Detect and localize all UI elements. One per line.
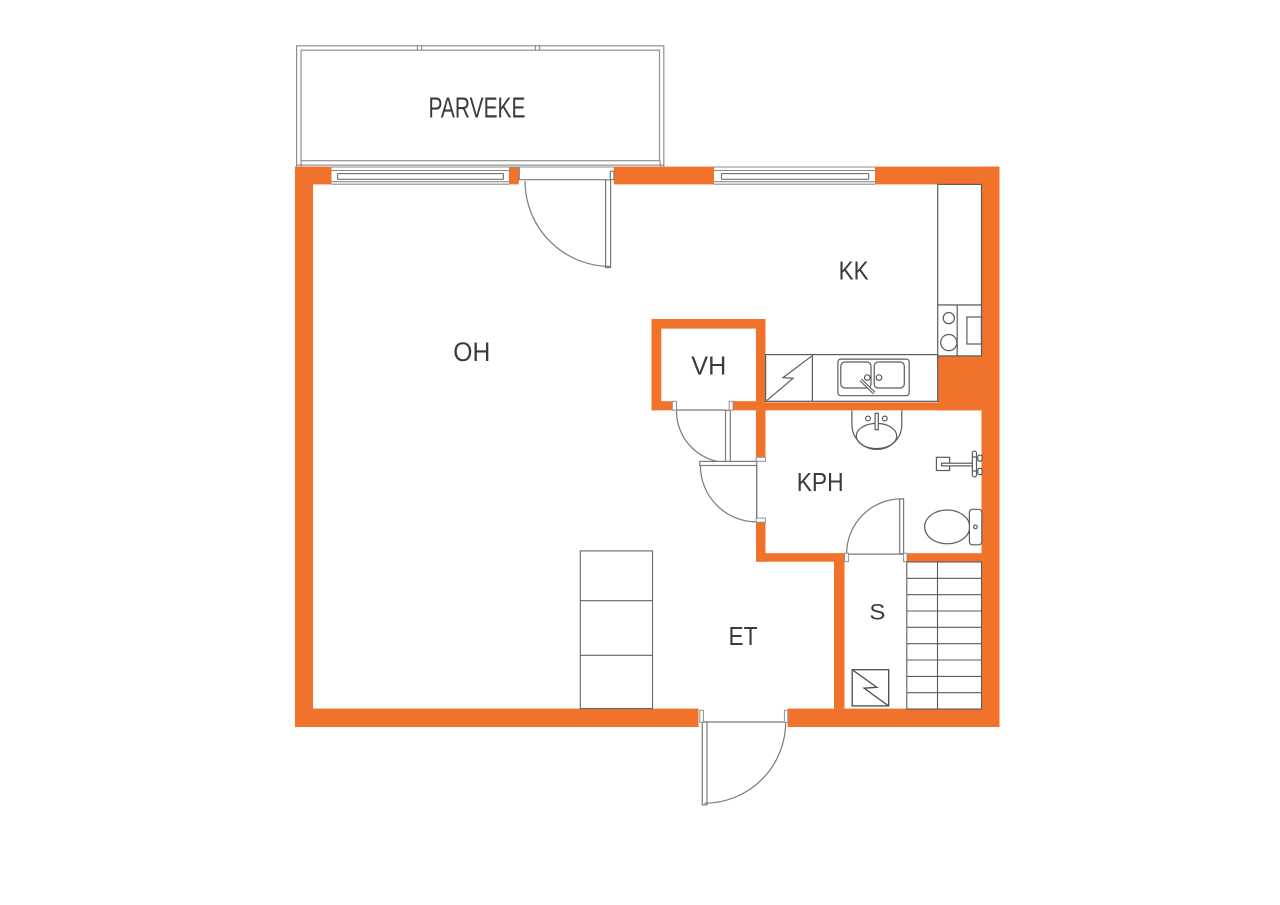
svg-text:KK: KK bbox=[839, 256, 870, 286]
svg-text:VH: VH bbox=[691, 353, 726, 381]
svg-text:S: S bbox=[869, 599, 885, 624]
svg-text:KPH: KPH bbox=[797, 469, 844, 497]
svg-text:ET: ET bbox=[729, 623, 758, 651]
svg-text:PARVEKE: PARVEKE bbox=[429, 93, 526, 125]
svg-text:OH: OH bbox=[453, 337, 490, 367]
